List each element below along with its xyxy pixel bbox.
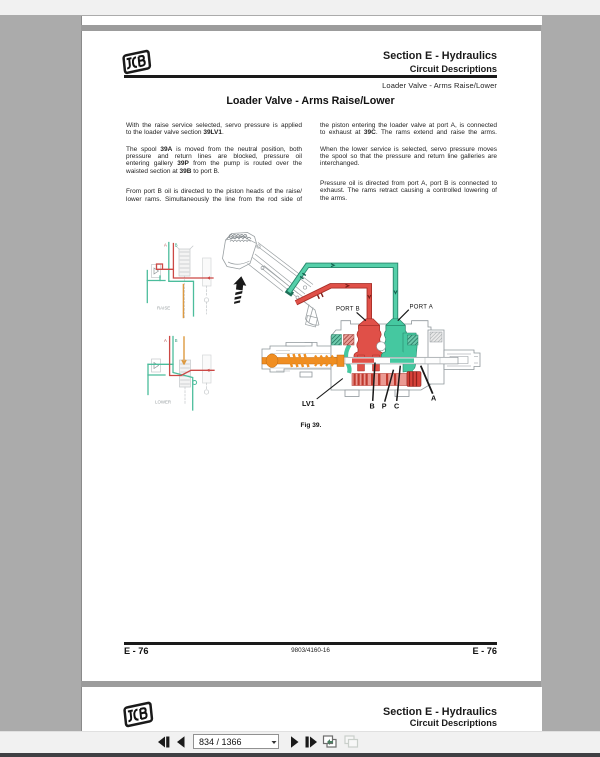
svg-text:B: B xyxy=(370,402,375,411)
svg-text:B: B xyxy=(175,338,178,343)
svg-text:LOWER: LOWER xyxy=(155,400,171,405)
svg-text:PORT B: PORT B xyxy=(336,307,360,313)
svg-text:A: A xyxy=(164,338,167,343)
svg-text:P: P xyxy=(382,402,387,411)
svg-text:C: C xyxy=(394,402,399,411)
svg-text:LV1: LV1 xyxy=(302,399,315,408)
svg-text:Fig 39.: Fig 39. xyxy=(301,422,322,429)
svg-text:RAISE: RAISE xyxy=(157,306,170,311)
svg-text:A: A xyxy=(164,243,167,248)
svg-text:B: B xyxy=(175,243,178,248)
svg-text:A: A xyxy=(431,394,436,403)
svg-text:PORT A: PORT A xyxy=(410,305,434,311)
